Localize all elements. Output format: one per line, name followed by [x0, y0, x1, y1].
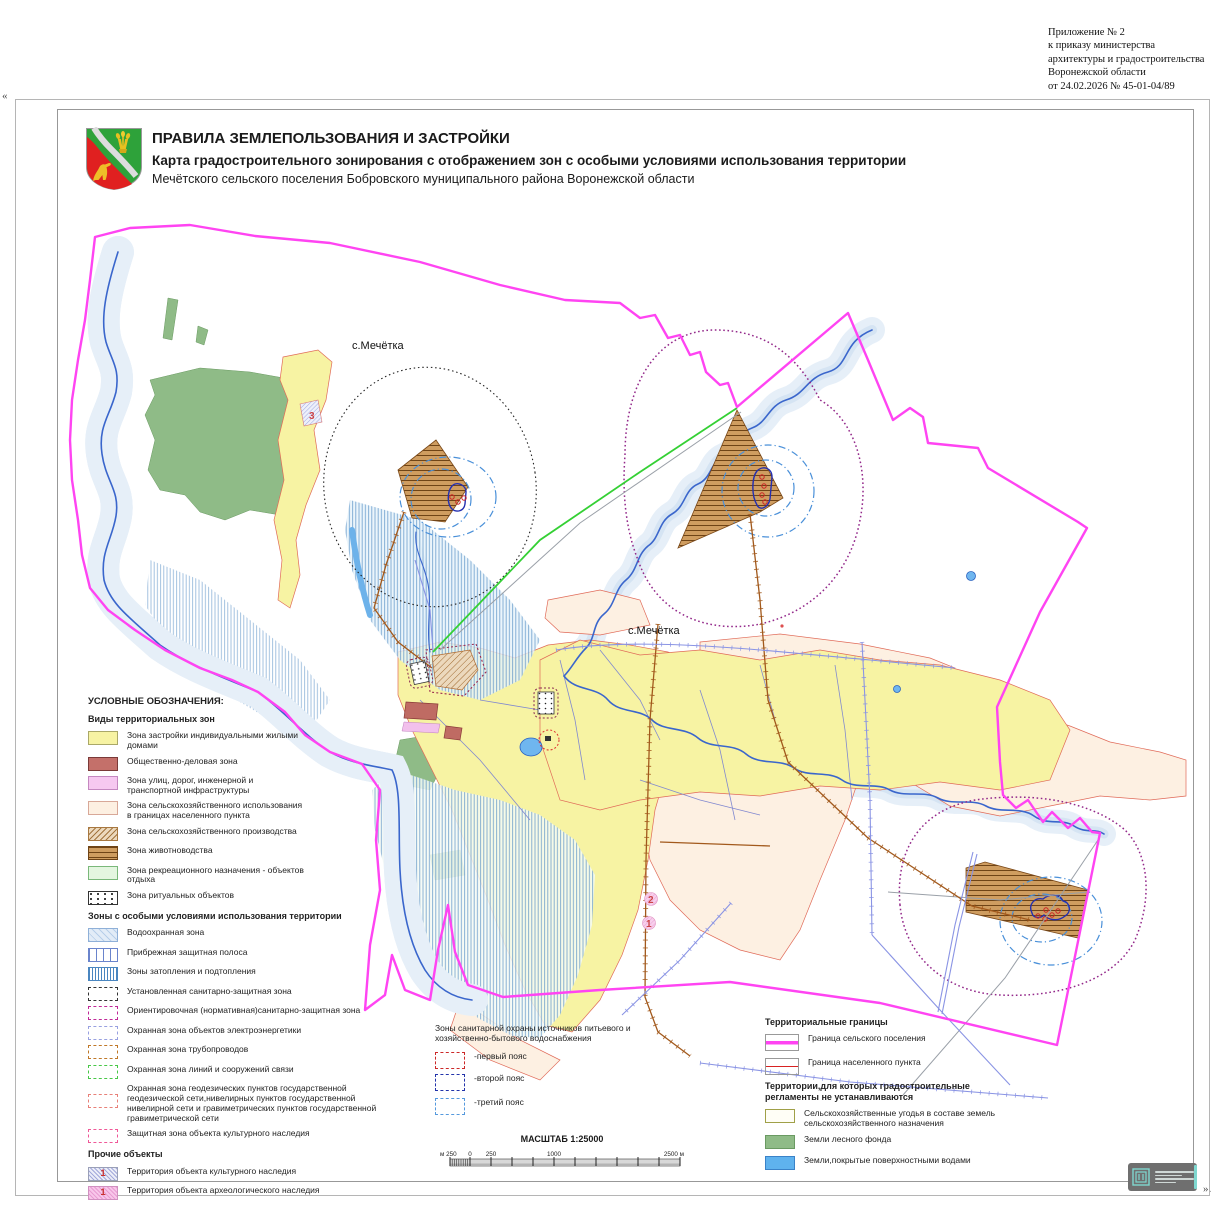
- legend-label: -второй пояс: [474, 1074, 524, 1084]
- legend-label: Территория объекта культурного наследия: [127, 1167, 296, 1177]
- legend-item: Зона застройки индивидуальными жилыми до…: [88, 731, 400, 751]
- legend-label: Защитная зона объекта культурного наслед…: [127, 1129, 310, 1139]
- scale-label: 2500 м: [664, 1151, 684, 1158]
- stamp-text-lines: [1155, 1171, 1194, 1183]
- swatch-flood-zone: [88, 967, 118, 981]
- legend-label: Зоны затопления и подтопления: [127, 967, 256, 977]
- legend-label: Прибрежная защитная полоса: [127, 948, 247, 958]
- legend-item: Защитная зона объекта культурного наслед…: [88, 1129, 400, 1143]
- legend-item: Земли,покрытые поверхностными водами: [765, 1156, 1070, 1170]
- legend-item: Зона рекреационного назначения - объекто…: [88, 866, 400, 886]
- legend-label: Охранная зона линий и сооружений связи: [127, 1065, 294, 1075]
- legend-label: Охранная зона трубопроводов: [127, 1045, 248, 1055]
- swatch-second-belt: [435, 1074, 465, 1091]
- issuer-stamp: [1128, 1163, 1197, 1191]
- legend-label: Ориентировочная (нормативная)санитарно-з…: [127, 1006, 360, 1016]
- swatch-coastal-strip: [88, 948, 118, 962]
- settlement-label-south: с.Мечётка: [628, 625, 681, 637]
- legend-item: Земли лесного фонда: [765, 1135, 1070, 1149]
- swatch-water-protection: [88, 928, 118, 942]
- legend-item: Зоны затопления и подтопления: [88, 967, 400, 981]
- scale-label: 1000: [547, 1151, 562, 1158]
- legend-item: Общественно-деловая зона: [88, 757, 400, 771]
- annotation-line: Воронежской области: [1048, 66, 1218, 79]
- sanitary-legend-title: Зоны санитарной охраны источников питьев…: [435, 1024, 670, 1044]
- legend-label: Зона рекреационного назначения - объекто…: [127, 866, 305, 886]
- swatch-geodetic-zone: [88, 1094, 118, 1108]
- legend-label: Охранная зона геодезических пунктов госу…: [127, 1084, 400, 1123]
- legend-label: Зона животноводства: [127, 846, 213, 856]
- swatch-agri-lands: [765, 1109, 795, 1123]
- scale-label: 250: [486, 1151, 497, 1158]
- legend-label: Охранная зона объектов электроэнергетики: [127, 1026, 301, 1036]
- legend-label: Зона сельскохозяйственного производства: [127, 827, 297, 837]
- stamp-emblem-icon: [1131, 1167, 1151, 1187]
- legend-label: Общественно-деловая зона: [127, 757, 238, 767]
- swatch-residential-zone: [88, 731, 118, 745]
- swatch-electro-zone: [88, 1026, 118, 1040]
- swatch-third-belt: [435, 1098, 465, 1115]
- legend-item: -первый пояс: [435, 1052, 670, 1069]
- legend-special-title: Зоны с особыми условиями использования т…: [88, 911, 400, 921]
- annotation-line: архитектуры и градостроительства: [1048, 53, 1218, 66]
- bounds-legend-title: Территориальные границы: [765, 1017, 1070, 1027]
- left-corner-mark: «: [2, 90, 8, 102]
- legend-item: Граница населенного пункта: [765, 1058, 1070, 1075]
- heritage-marker-2: 2: [648, 895, 654, 906]
- swatch-surface-water-lands: [765, 1156, 795, 1170]
- swatch-street-infra-zone: [88, 776, 118, 790]
- zoning-map-sheet: { "annotation": { "line1": "Приложение №…: [0, 0, 1220, 1200]
- legend-sanitary-water: Зоны санитарной охраны источников питьев…: [435, 1024, 670, 1121]
- legend-item: Водоохранная зона: [88, 928, 400, 942]
- legend-item: 1 Территория объекта археологического на…: [88, 1186, 400, 1200]
- legend-item: -второй пояс: [435, 1074, 670, 1091]
- annotation-line: Приложение № 2: [1048, 26, 1218, 39]
- legend-item: Охранная зона линий и сооружений связи: [88, 1065, 400, 1079]
- scale-label: 0: [468, 1151, 472, 1158]
- swatch-heritage-protect-zone: [88, 1129, 118, 1143]
- legend-other-title: Прочие объекты: [88, 1149, 400, 1159]
- swatch-business-zone: [88, 757, 118, 771]
- legend-item: Охранная зона объектов электроэнергетики: [88, 1026, 400, 1040]
- no-reg-title: Территории,для которых градостроительные…: [765, 1081, 1015, 1102]
- legend-label: Земли лесного фонда: [804, 1135, 891, 1145]
- scale-block: МАСШТАБ 1:25000 м 250 0 250 1000 2500 м: [432, 1134, 692, 1177]
- settlement-label-north: с.Мечётка: [352, 340, 405, 352]
- legend-item: Прибрежная защитная полоса: [88, 948, 400, 962]
- swatch-agri-production-zone: [88, 827, 118, 841]
- swatch-pipeline-zone: [88, 1045, 118, 1059]
- legend-label: Сельскохозяйственные угодья в составе зе…: [804, 1109, 1070, 1129]
- legend-item: 1 Территория объекта культурного наследи…: [88, 1167, 400, 1181]
- legend-item: Граница сельского поселения: [765, 1034, 1070, 1051]
- legend-main: УСЛОВНЫЕ ОБОЗНАЧЕНИЯ: Виды территориальн…: [88, 696, 400, 1206]
- swatch-agri-use-zone: [88, 801, 118, 815]
- swatch-ritual-zone: [88, 891, 118, 905]
- stamp-accent-strip: [1194, 1165, 1197, 1189]
- legend-item: Зона ритуальных объектов: [88, 891, 400, 905]
- legend-item: Установленная санитарно-защитная зона: [88, 987, 400, 1001]
- swatch-forest-lands: [765, 1135, 795, 1149]
- legend-item: -третий пояс: [435, 1098, 670, 1115]
- swatch-locality-boundary: [765, 1058, 799, 1075]
- legend-item: Ориентировочная (нормативная)санитарно-з…: [88, 1006, 400, 1020]
- legend-zones-title: Виды территориальных зон: [88, 714, 400, 724]
- swatch-settlement-boundary: [765, 1034, 799, 1051]
- swatch-szz-established: [88, 987, 118, 1001]
- legend-item: Зона сельскохозяйственного использования…: [88, 801, 400, 821]
- legend-item: Зона улиц, дорог, инженерной и транспорт…: [88, 776, 400, 796]
- legend-label: Территория объекта археологического насл…: [127, 1186, 320, 1196]
- archeo-badge: 1: [100, 1188, 105, 1198]
- legend-label: Установленная санитарно-защитная зона: [127, 987, 292, 997]
- swatch-first-belt: [435, 1052, 465, 1069]
- legend-label: Граница населенного пункта: [808, 1058, 921, 1068]
- swatch-szz-orient: [88, 1006, 118, 1020]
- legend-label: Водоохранная зона: [127, 928, 204, 938]
- legend-label: -первый пояс: [474, 1052, 527, 1062]
- legend-item: Охранная зона трубопроводов: [88, 1045, 400, 1059]
- legend-label: Граница сельского поселения: [808, 1034, 926, 1044]
- legend-label: Зона застройки индивидуальными жилыми до…: [127, 731, 305, 751]
- legend-label: Зона сельскохозяйственного использования…: [127, 801, 305, 821]
- heritage-badge: 1: [100, 1169, 105, 1179]
- legend-label: -третий пояс: [474, 1098, 524, 1108]
- swatch-recreation-zone: [88, 866, 118, 880]
- scale-label: м 250: [440, 1151, 457, 1158]
- swatch-comm-zone: [88, 1065, 118, 1079]
- annotation-line: от 24.02.2026 № 45-01-04/89: [1048, 80, 1218, 93]
- scale-title: МАСШТАБ 1:25000: [432, 1134, 692, 1144]
- heritage-marker-3: 3: [309, 411, 315, 422]
- legend-item: Охранная зона геодезических пунктов госу…: [88, 1084, 400, 1123]
- legend-title: УСЛОВНЫЕ ОБОЗНАЧЕНИЯ:: [88, 696, 400, 707]
- order-annotation: Приложение № 2 к приказу министерства ар…: [1048, 26, 1218, 93]
- heritage-marker-1: 1: [646, 919, 652, 930]
- legend-territorial-bounds: Территориальные границы Граница сельског…: [765, 1017, 1070, 1175]
- legend-label: Зона ритуальных объектов: [127, 891, 234, 901]
- legend-label: Зона улиц, дорог, инженерной и транспорт…: [127, 776, 305, 796]
- swatch-archeo-territory: 1: [88, 1186, 118, 1200]
- swatch-heritage-territory: 1: [88, 1167, 118, 1181]
- swatch-livestock-zone: [88, 846, 118, 860]
- legend-item: Сельскохозяйственные угодья в составе зе…: [765, 1109, 1070, 1129]
- legend-label: Земли,покрытые поверхностными водами: [804, 1156, 971, 1166]
- legend-item: Зона сельскохозяйственного производства: [88, 827, 400, 841]
- annotation-line: к приказу министерства: [1048, 39, 1218, 52]
- legend-item: Зона животноводства: [88, 846, 400, 860]
- scale-bar: м 250 0 250 1000 2500 м: [432, 1148, 692, 1172]
